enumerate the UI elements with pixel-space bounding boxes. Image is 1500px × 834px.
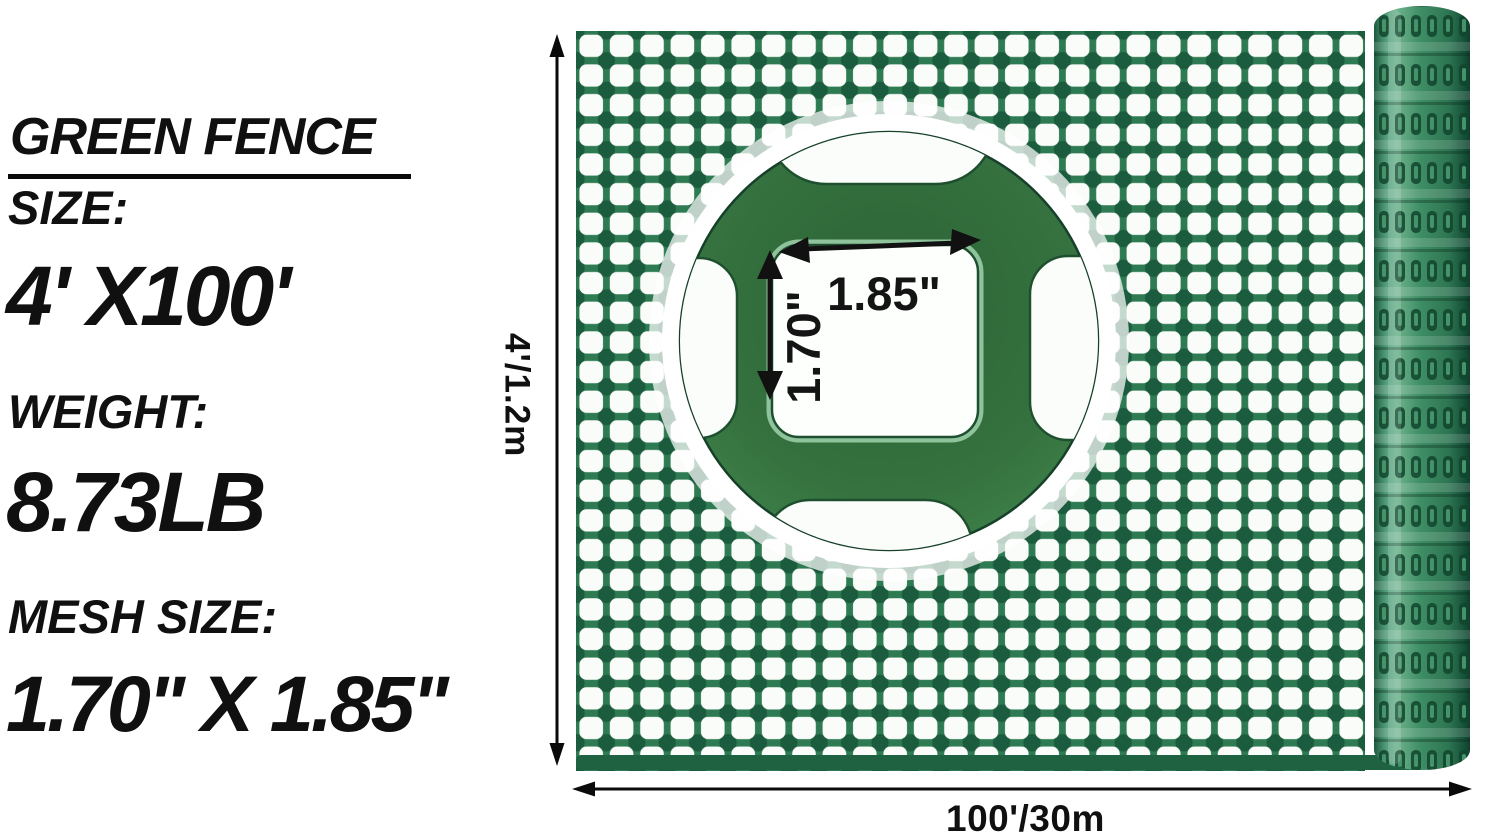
mesh-height-value: 1.70" <box>777 290 830 404</box>
specs-panel: GREEN FENCE SIZE: 4' X100' WEIGHT: 8.73L… <box>0 0 560 834</box>
height-dimension-arrow <box>550 34 565 766</box>
green-fence-product-diagram: GREEN FENCE SIZE: 4' X100' WEIGHT: 8.73L… <box>0 0 1500 834</box>
mesh-size-value: 1.70" X 1.85" <box>6 664 446 743</box>
fence-roll <box>1374 6 1470 770</box>
fence-diagram: 1.85" 1.70" <box>490 0 1500 834</box>
mesh-width-value: 1.85" <box>827 267 941 320</box>
size-label: SIZE: <box>8 184 128 231</box>
fence-bottom-selvage <box>576 755 1422 770</box>
size-value: 4' X100' <box>6 254 288 338</box>
mesh-size-label: MESH SIZE: <box>8 593 277 640</box>
product-title: GREEN FENCE <box>8 111 411 179</box>
weight-label: WEIGHT: <box>8 388 208 435</box>
length-dimension-arrow <box>572 782 1472 797</box>
length-dimension-label: 100'/30m <box>946 798 1105 834</box>
weight-value: 8.73LB <box>6 460 263 544</box>
